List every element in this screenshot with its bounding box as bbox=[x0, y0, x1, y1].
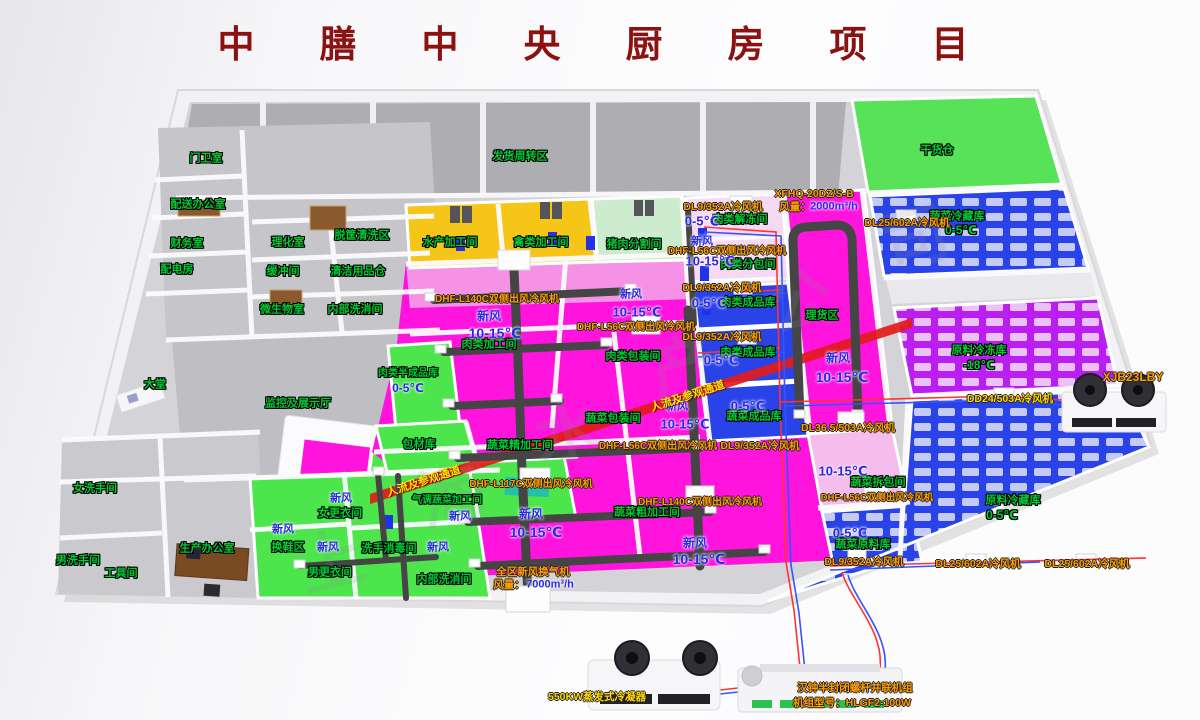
room-label: 微生物室 bbox=[260, 305, 304, 316]
hvac-label: 新风 bbox=[330, 494, 352, 505]
hvac-label: 0-5℃ bbox=[833, 527, 868, 540]
room-label: 门卫室 bbox=[190, 154, 223, 165]
room-label: 禽类加工间 bbox=[514, 238, 569, 249]
room-label: 原料冷冻库 bbox=[952, 346, 1007, 357]
room-label: 干货仓 bbox=[921, 146, 954, 157]
equipment-label: DHF-L140C双侧出风冷风机 bbox=[638, 498, 762, 508]
equipment-label: DHF-L56C双侧出风冷风机 bbox=[577, 323, 695, 333]
room-label: 男洗手间 bbox=[56, 556, 100, 567]
hvac-label: 新风 bbox=[826, 352, 850, 364]
hvac-label: 10-15℃ bbox=[673, 552, 726, 566]
equipment-label: 汉钟半封闭螺杆并联机组 bbox=[797, 683, 913, 694]
room-label: -18℃ bbox=[963, 359, 995, 371]
room-label: 内部洗消间 bbox=[328, 305, 383, 316]
room-label: 肉类半成品库 bbox=[378, 369, 438, 379]
room-label: 洗手消毒间 bbox=[362, 544, 417, 555]
room-label: 清洁用品仓 bbox=[331, 267, 386, 278]
room-label: 内部洗消间 bbox=[417, 575, 472, 586]
room-label: 配电房 bbox=[161, 265, 194, 276]
equipment-label: 全区新风换气机 bbox=[496, 567, 570, 578]
equipment-label: DL25/602A冷风机 bbox=[935, 559, 1020, 570]
room-label: 0-5℃ bbox=[945, 224, 977, 236]
equipment-label: DL9/352A冷风机 bbox=[683, 202, 762, 213]
equipment-label: 550KW蒸发式冷凝器 bbox=[548, 692, 646, 703]
hvac-label: 10-15℃ bbox=[613, 306, 662, 319]
equipment-label: DL9/352A冷风机 bbox=[720, 441, 799, 452]
hvac-label: 2000m³/h bbox=[810, 202, 858, 213]
room-label: 发货周转区 bbox=[493, 152, 548, 163]
room-label: 配送办公室 bbox=[171, 200, 226, 211]
hvac-label: 新风 bbox=[427, 543, 449, 554]
labels-layer: 门卫室配送办公室财务室配电房理化室脱筐清洗区缓冲间清洁用品仓微生物室内部洗消间大… bbox=[0, 0, 1200, 720]
equipment-label: DL36.5/503A冷风机 bbox=[801, 423, 895, 434]
hvac-label: 10-15℃ bbox=[819, 465, 868, 478]
hvac-label: 0-5℃ bbox=[731, 400, 766, 413]
hvac-label: 0-5℃ bbox=[692, 297, 727, 310]
equipment-label: DL9/352A冷风机 bbox=[682, 283, 761, 294]
hvac-label: 新风 bbox=[317, 543, 339, 554]
room-label: 肉类加工间 bbox=[462, 340, 517, 351]
room-label: 缓冲间 bbox=[267, 267, 300, 278]
hvac-label: 0-5℃ bbox=[704, 354, 739, 367]
room-label: 女更衣间 bbox=[318, 509, 362, 520]
hvac-label: 7000m³/h bbox=[526, 580, 574, 591]
room-label: 蔬菜精加工间 bbox=[487, 441, 553, 452]
hvac-label: 10-15℃ bbox=[816, 370, 869, 384]
room-label: 理货区 bbox=[806, 311, 839, 322]
room-label: 原料冷藏库 bbox=[986, 496, 1041, 507]
hvac-label: 0-5℃ bbox=[392, 382, 424, 394]
room-label: 蔬菜粗加工间 bbox=[614, 508, 680, 519]
room-label: 脱筐清洗区 bbox=[335, 231, 390, 242]
equipment-label: DL25/602A冷风机 bbox=[1044, 559, 1129, 570]
room-label: 监控及展示厅 bbox=[265, 399, 331, 410]
equipment-label: DHF-L56C双侧出风冷风机 bbox=[668, 247, 786, 257]
central-kitchen-plan: 中 膳 中 央 厨 房 项 目 bbox=[0, 0, 1200, 720]
room-label: 肉类包装间 bbox=[606, 352, 661, 363]
equipment-label: 风量： bbox=[493, 580, 525, 591]
room-label: 气调蔬菜加工间 bbox=[412, 496, 482, 506]
room-label: 水产加工间 bbox=[423, 238, 478, 249]
equipment-label: DHF-L117C双侧出风冷风机 bbox=[469, 480, 592, 490]
room-label: 工具间 bbox=[105, 569, 138, 580]
equipment-label: XJB23LBY bbox=[1103, 371, 1164, 383]
hvac-label: 新风 bbox=[683, 537, 707, 549]
hvac-label: 10-15℃ bbox=[661, 418, 710, 431]
room-label: 女洗手间 bbox=[73, 484, 117, 495]
room-label: 0-5℃ bbox=[986, 509, 1018, 521]
hvac-label: 新风 bbox=[477, 310, 501, 322]
equipment-label: 风量： bbox=[779, 202, 811, 213]
equipment-label: DL25/602A冷风机 bbox=[864, 218, 949, 229]
room-label: 大堂 bbox=[144, 380, 166, 391]
equipment-label: DHF-L140C双侧出风冷风机 bbox=[435, 295, 559, 305]
room-label: 男更衣间 bbox=[308, 568, 352, 579]
equipment-label: 机组型号：HLGF2-100W bbox=[793, 698, 911, 709]
hvac-label: 新风 bbox=[519, 508, 543, 520]
hvac-label: 新风 bbox=[620, 290, 642, 301]
room-label: 生产办公室 bbox=[180, 544, 235, 555]
room-label: 换鞋区 bbox=[272, 543, 305, 554]
equipment-label: DD24/503A冷风机 bbox=[967, 394, 1053, 405]
room-label: 财务室 bbox=[171, 239, 204, 250]
page-title: 中 膳 中 央 厨 房 项 目 bbox=[0, 14, 1200, 68]
hvac-label: 新风 bbox=[272, 525, 294, 536]
room-label: 蔬菜包装间 bbox=[586, 414, 641, 425]
equipment-label: DL9/352A冷风机 bbox=[682, 332, 761, 343]
hvac-label: 10-15℃ bbox=[510, 525, 563, 539]
hvac-label: 10-15℃ bbox=[469, 326, 522, 340]
hvac-label: 0-5℃ bbox=[685, 215, 720, 228]
equipment-label: DHF-L56C双侧出风冷风机 bbox=[821, 493, 933, 503]
equipment-label: DHF-L56C双侧出风冷风机 bbox=[599, 442, 717, 452]
room-label: 肉类解冻间 bbox=[713, 215, 768, 226]
room-label: 蔬菜原料库 bbox=[836, 540, 891, 551]
room-label: 蔬菜拆包间 bbox=[851, 478, 906, 489]
room-label: 理化室 bbox=[272, 238, 305, 249]
room-label: 猪肉分割间 bbox=[607, 240, 662, 251]
equipment-label: DL9/352A冷风机 bbox=[824, 557, 903, 568]
hvac-label: 新风 bbox=[449, 512, 471, 523]
room-label: 包材库 bbox=[403, 440, 436, 451]
room-label: 肉类成品库 bbox=[721, 298, 776, 309]
equipment-label: XFHQ-20DZ/S-B bbox=[774, 189, 853, 200]
